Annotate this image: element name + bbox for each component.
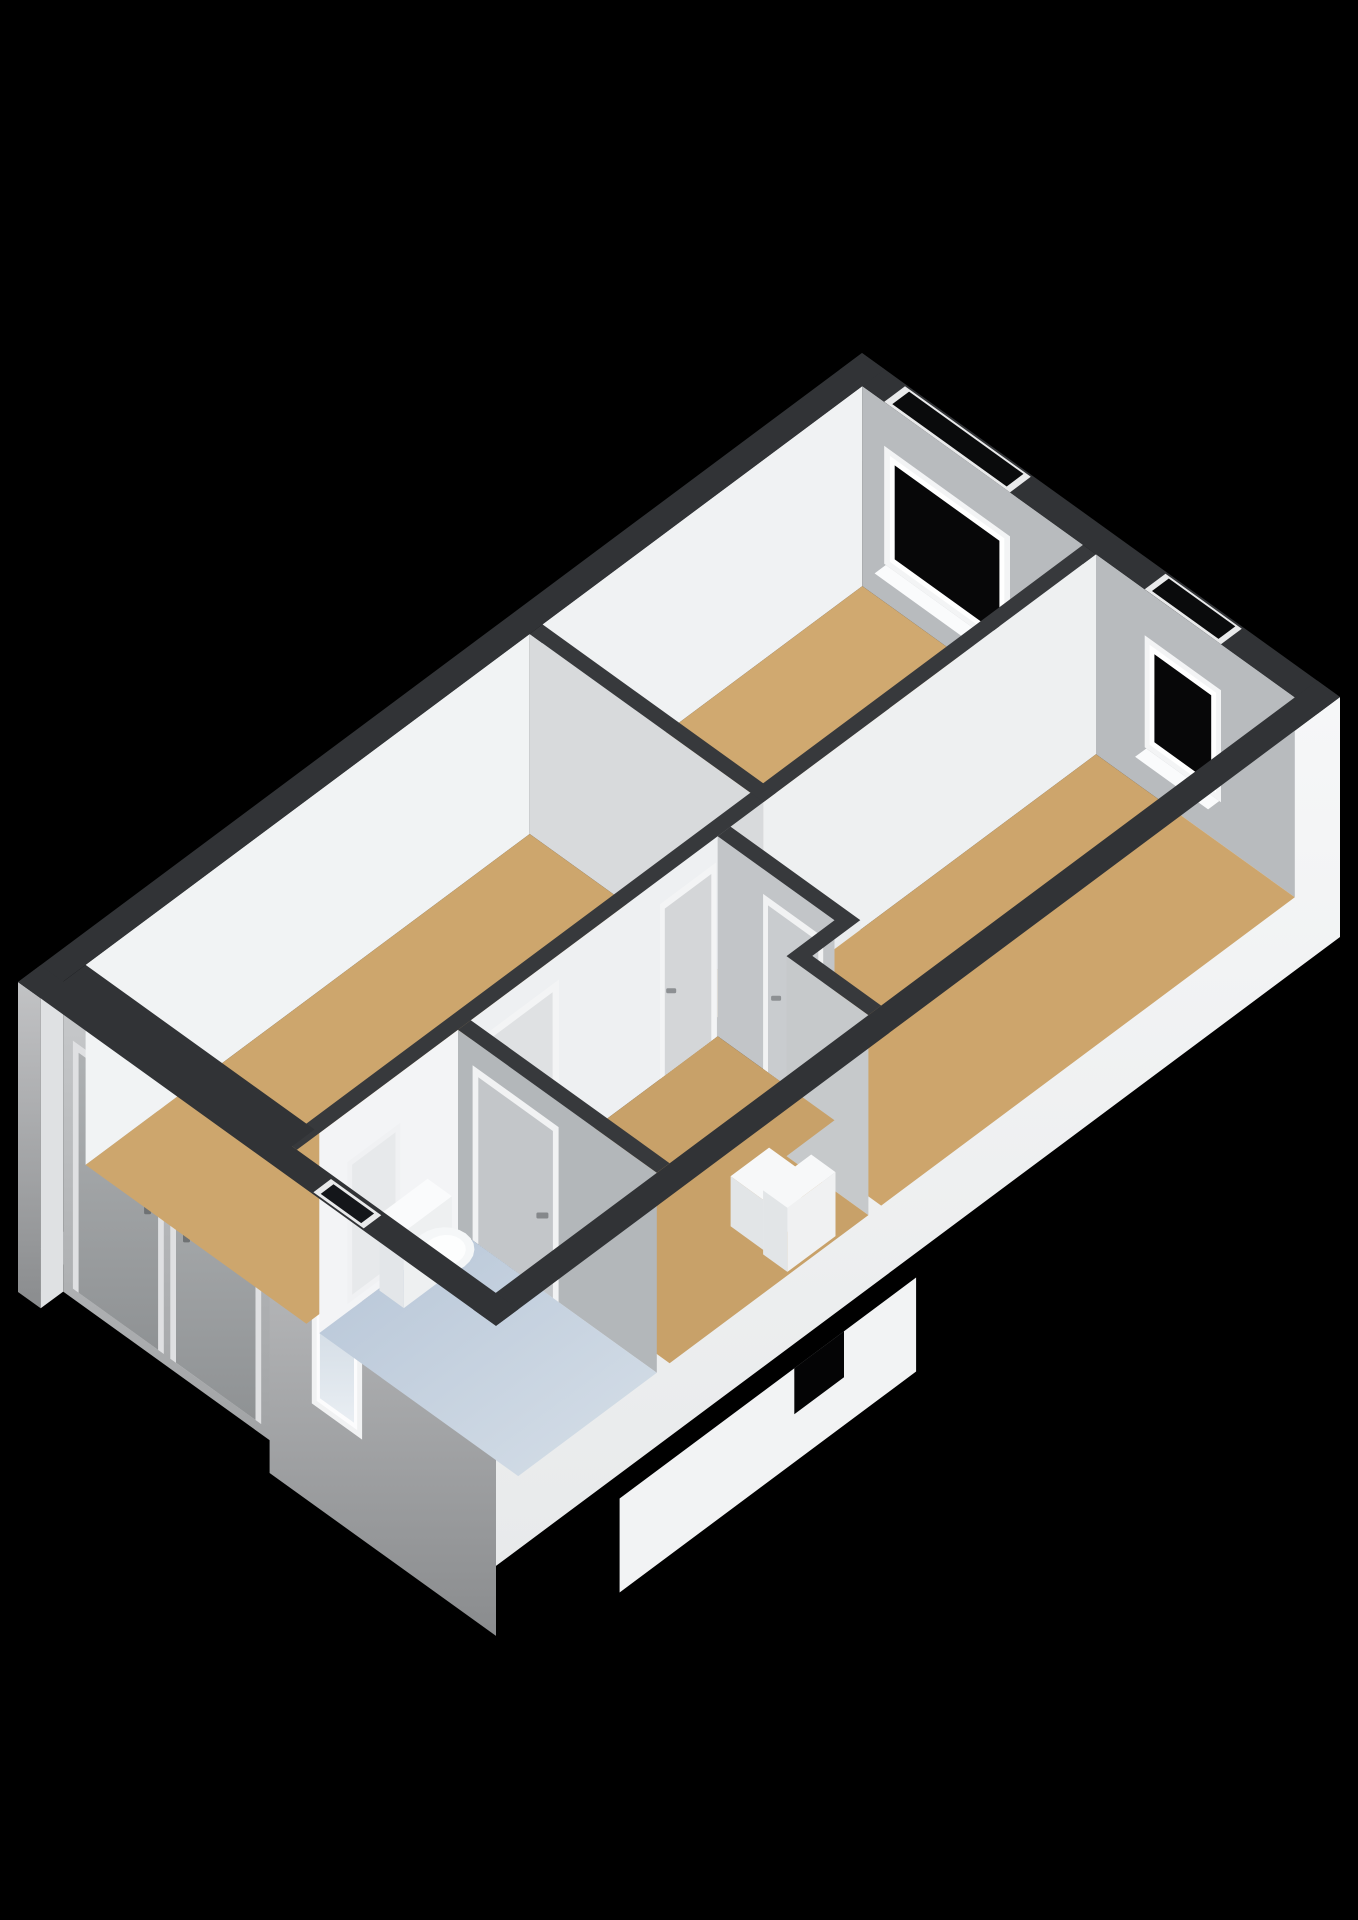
exterior-wall-sw-west-sliver xyxy=(18,982,41,1308)
floorplan-3d-render xyxy=(0,0,1358,1920)
porch-side-wall xyxy=(41,982,64,1309)
wc-door-handle xyxy=(536,1213,548,1219)
bedroom2-door-handle xyxy=(771,996,781,1001)
floorplan-page xyxy=(0,0,1358,1920)
hallway-door-living-1-handle xyxy=(666,988,676,993)
hallway-door-living-1-panel xyxy=(665,874,712,1076)
